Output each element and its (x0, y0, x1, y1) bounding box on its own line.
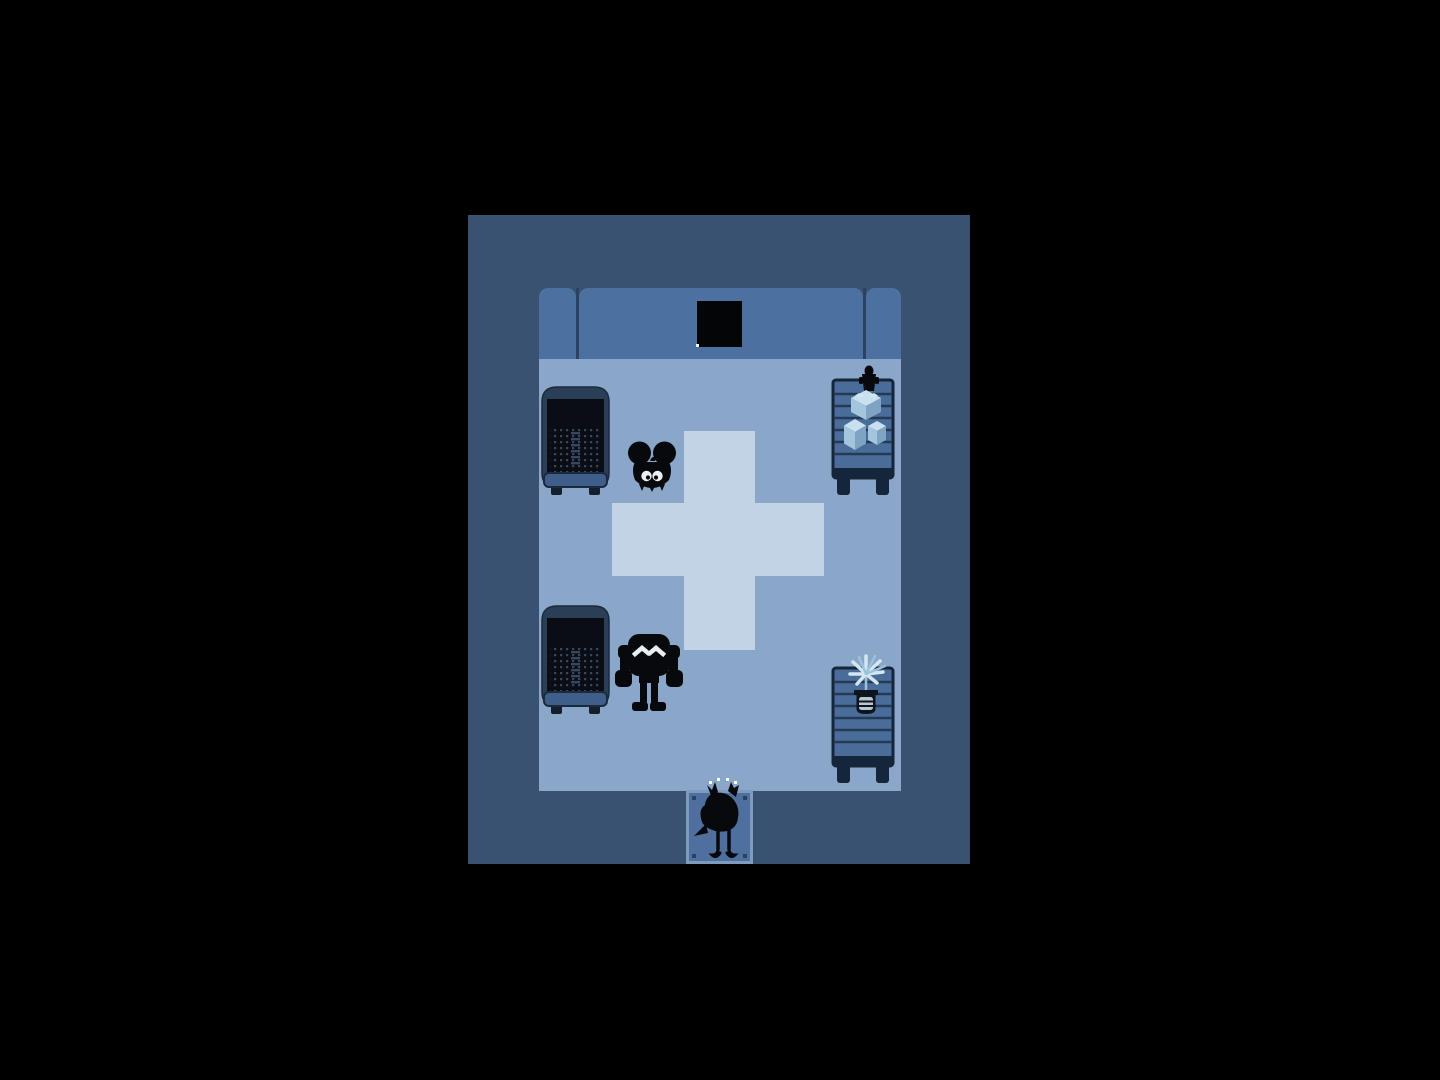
dark-window (697, 301, 742, 347)
hospital-bed-bottom-icon (541, 605, 610, 715)
couch-left-arm (539, 288, 576, 359)
creature-eye (641, 471, 651, 481)
hospital-room (468, 215, 970, 864)
brute-creature-icon (613, 632, 685, 712)
supply-cart-cubes-icon (831, 364, 895, 500)
cube-icon (868, 421, 886, 445)
window-sparkle (696, 344, 699, 347)
medical-cross-rug-horizontal (612, 503, 824, 576)
hospital-bed-top-icon (541, 386, 610, 496)
bird-emote-dots (709, 778, 737, 784)
bird-character-icon (692, 776, 752, 860)
supply-cart-plant-icon (831, 652, 895, 788)
round-eared-creature-icon (627, 440, 677, 492)
couch-right-arm (866, 288, 901, 359)
cube-icon (844, 419, 866, 450)
creature-eye (652, 471, 662, 481)
game-viewport[interactable] (0, 0, 1440, 1080)
